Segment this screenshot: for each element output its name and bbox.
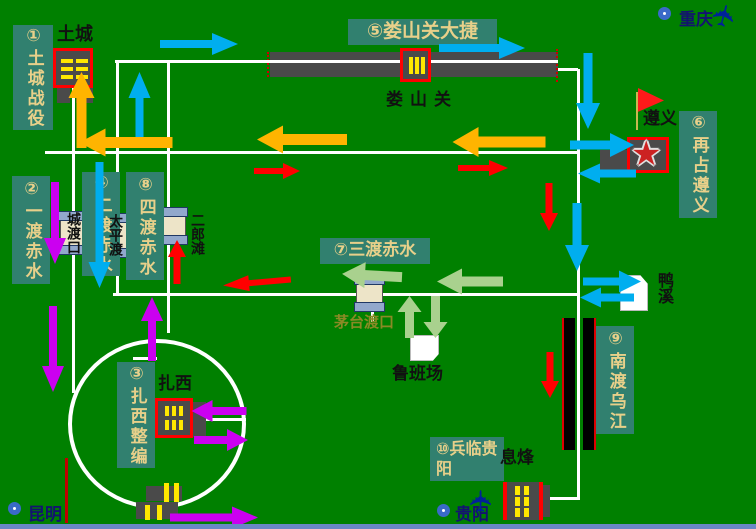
arrow-red [222,272,291,295]
route-line [577,69,580,500]
arrow-cyan [160,33,238,55]
place-label: 二郎滩 [187,213,207,255]
place-label: 息烽 [500,443,534,468]
campaign-map: ★ ①土城战役②一渡赤水③扎西整编④二渡赤水⑤娄山关大捷⑥再占遵义⑦三渡赤水⑧四… [0,0,756,529]
arrow-red [458,160,508,176]
event-label-1: ①土城战役 [13,25,53,130]
arrow-cyan [576,53,600,129]
wujiang-river-bar [583,318,594,450]
arrow-green [424,296,449,338]
arrow-red [541,352,559,398]
arrow-green [397,296,422,338]
route-line [115,60,558,63]
event-label-10: ⑩兵临贵阳 [430,437,504,481]
route-line [45,151,578,154]
bottom-border [0,524,756,529]
arrow-red [254,163,300,179]
tucheng-town-base [57,88,70,103]
route-line [113,293,580,296]
city-marker-icon [437,504,450,517]
zhaxi-building-wing [192,402,206,437]
event-label-5: ⑤娄山关大捷 [348,19,497,45]
route-line [133,357,157,360]
event-label-8: ⑧四渡赤水 [126,172,164,280]
place-label: 扎西 [158,369,192,394]
place-label: 太平渡 [105,214,125,256]
loushan-pass-icon [400,48,431,82]
tucheng-town-icon [53,48,93,88]
place-label: 鸭溪 [652,272,676,304]
event-label-3: ③扎西整编 [117,362,155,468]
arrow-red [540,183,558,231]
city-name: 昆明 [28,500,62,525]
event-label-7: ⑦三渡赤水 [320,238,430,264]
zhaxi-building [155,398,193,438]
yaxi-house [620,275,648,311]
event-label-6: ⑥再占遵义 [679,111,717,218]
ferry-icon-maotaidukou [356,276,383,311]
airplane-icon: ✈ [708,0,743,32]
place-label: 城渡口 [63,212,83,254]
red-route-line [65,458,68,523]
route-line [558,68,578,71]
arrow-cyan [128,72,151,142]
tucheng-town-base [76,88,93,103]
ridge-end-right [556,49,558,82]
city-marker-icon [658,7,671,20]
place-label: 茅台渡口 [334,311,394,332]
arrow-green [437,269,503,296]
place-label: 娄山关 [386,85,458,110]
place-label: 土城 [57,20,93,46]
place-label: 鲁班场 [392,359,443,384]
lubanchang-house [410,335,439,361]
ridge-end-left [267,52,269,77]
wujiang-river-bar [564,318,575,450]
place-label: 遵义 [643,104,677,129]
xifeng-building [503,482,543,520]
event-label-9: ⑨南渡乌江 [596,326,634,434]
event-label-2: ②一渡赤水 [12,176,50,284]
city-marker-icon [8,502,21,515]
arrow-red [168,240,186,284]
airplane-icon: ✈ [468,488,498,513]
arrow-magenta [42,306,64,392]
zunyi-flag-pole [636,92,638,130]
red-star-icon: ★ [631,137,661,171]
